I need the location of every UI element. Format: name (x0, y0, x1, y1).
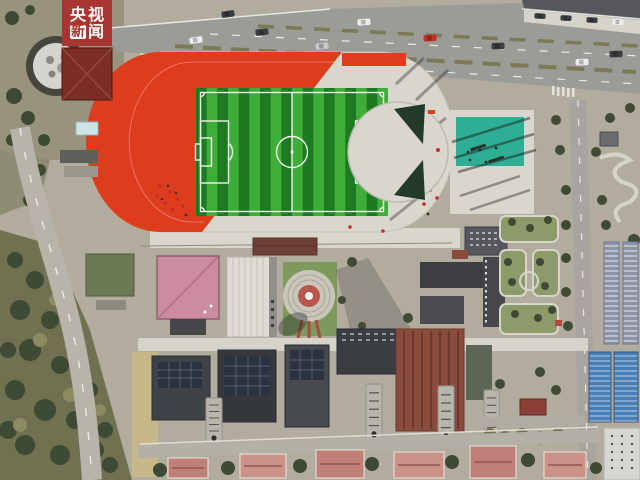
circular-plaza (274, 262, 337, 341)
watermark-row-1: 央 视 (70, 7, 104, 23)
parked-car (534, 13, 545, 19)
blue-shed (589, 352, 611, 422)
watermark-row-2: 新 闻 (70, 24, 104, 40)
teal-sports-court (456, 117, 524, 166)
parked-car (560, 15, 571, 21)
long-shed (623, 242, 638, 344)
guard-house (600, 132, 618, 146)
car (575, 59, 588, 66)
gym-annex (170, 319, 206, 335)
small-pool (76, 122, 98, 135)
track-east-circle-plaza (348, 102, 448, 202)
stair-tower (366, 384, 382, 442)
stair-tower (206, 398, 222, 444)
small-red-roof-building (520, 399, 546, 415)
watermark-char-xin: 新 (70, 25, 86, 39)
car (609, 51, 622, 58)
sports-court-area (450, 110, 536, 214)
school-building (337, 329, 399, 374)
aerial-scene (0, 0, 640, 480)
green-roof-building (86, 254, 134, 296)
parked-car (612, 19, 623, 25)
watermark-char-wen: 闻 (88, 24, 104, 40)
car (423, 34, 436, 41)
parked-car (586, 17, 597, 23)
watermark-char-yang: 央 (70, 7, 86, 23)
car (491, 43, 504, 50)
car (315, 42, 329, 50)
watermark-cctv-news-logo: 央 视 新 闻 (62, 0, 112, 46)
shed (96, 300, 126, 310)
classroom-building (420, 296, 464, 324)
car (255, 28, 269, 36)
red-pavilion (555, 320, 562, 326)
shed (64, 166, 98, 177)
classroom-building (420, 262, 483, 288)
garden-bed (500, 250, 526, 296)
blue-shed (614, 352, 638, 422)
long-shed (604, 242, 619, 344)
watermark-char-shi: 视 (88, 7, 104, 23)
aerial-photo: 央 视 新 闻 (0, 0, 640, 480)
track-and-field (86, 52, 460, 248)
shed (60, 150, 98, 163)
car (357, 18, 370, 25)
